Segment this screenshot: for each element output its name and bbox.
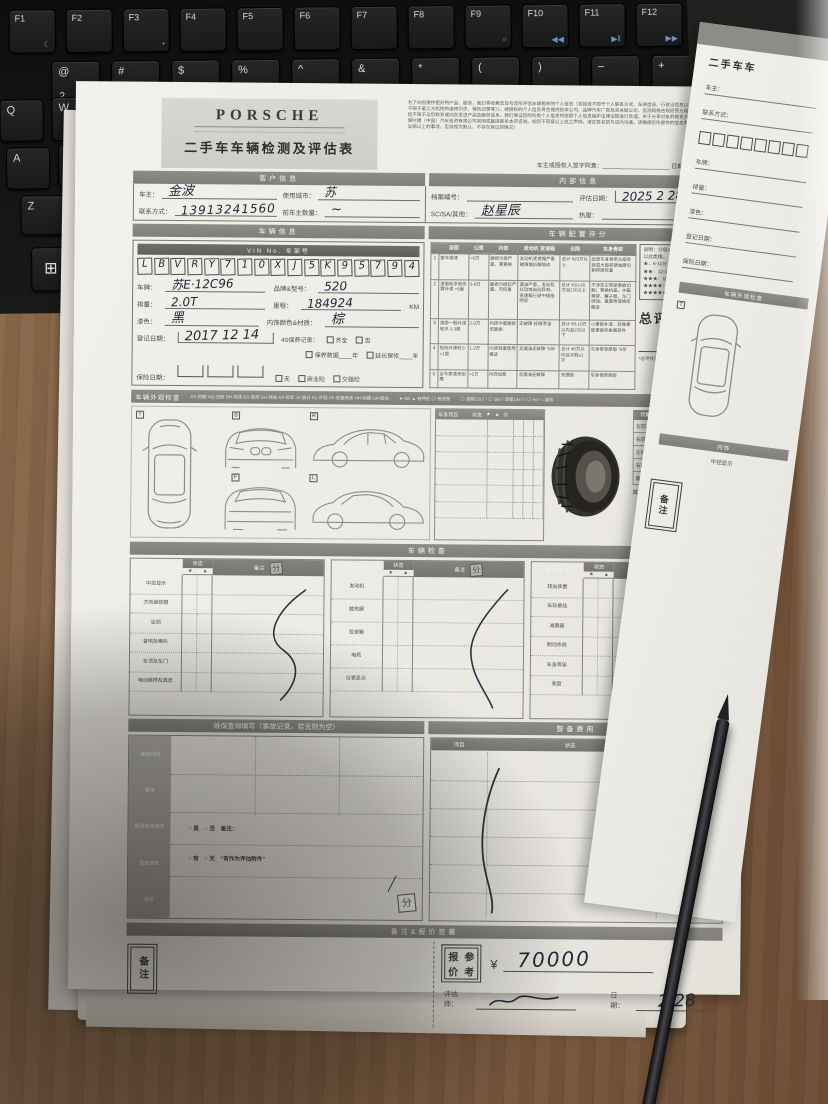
- maintenance-grid: ○ 是 ○ 否 备注： ○ 有 ○ 无 “有作为评估附件” 分: [170, 736, 424, 920]
- key-label: F10: [528, 8, 544, 18]
- key-symbol: @: [58, 66, 69, 78]
- rating-col-frame: 车身骨架: [590, 244, 636, 256]
- sign-label: 车主或授权人签字同意：____________________: [537, 163, 670, 170]
- windows-logo-icon: ⊞: [44, 258, 58, 278]
- vehicle-info-block: VIN No. 车架号 LBVRY710XJ5K95794 车牌： 苏E·12C…: [131, 240, 424, 389]
- score-stamp-box: 分: [397, 893, 417, 913]
- body-items-empty-grid: [435, 419, 544, 519]
- repair-list-options: ○ 有 ○ 无 “有作为评估附件”: [188, 854, 265, 863]
- checkbox-icon: [298, 375, 305, 382]
- key-label: F5: [243, 11, 254, 21]
- car-rear-view-drawing: [217, 479, 303, 534]
- maintenance-row-label: 其他: [128, 896, 170, 903]
- vin-char-handwritten: 5: [304, 259, 320, 276]
- key-symbol: –: [598, 60, 604, 72]
- key-symbol: +: [658, 60, 665, 72]
- key-z: Z: [20, 195, 64, 235]
- scsa-label: SC/SA/其他：: [431, 208, 472, 218]
- side-paint-field: 漆色：: [688, 206, 801, 233]
- keyboard-key: F8: [407, 5, 454, 49]
- car-front-view-drawing: [218, 419, 304, 472]
- currency-symbol: ¥: [490, 957, 497, 972]
- logo-subtext-line: [195, 126, 345, 133]
- trim-value-handwritten: 棕: [330, 308, 344, 327]
- section-bar-maintenance: 维保查询填写（事故记录，若无则为空）: [128, 719, 424, 735]
- key-label: F6: [300, 11, 311, 21]
- rating-row: 4 划伤补漆较少 <1面 1-2万 内饰轻度使用痕迹 无漏油无故障 *5年 总计…: [430, 344, 635, 371]
- keyboard-key: F9 ⌕: [464, 4, 511, 48]
- side-regdate-field: 登记日期：: [685, 231, 798, 258]
- plate-label: 车牌：: [137, 282, 157, 292]
- trim-label: 内饰颜色&材质：: [267, 317, 317, 327]
- maintenance-row-label: 是否保险维修: [128, 823, 170, 830]
- key-media-icon: ▶▶: [665, 34, 677, 43]
- car-view-diagrams: T B R F L: [130, 406, 431, 541]
- maintenance-row-label: 维修时间: [129, 750, 171, 757]
- key-a: A: [6, 147, 50, 189]
- insurance-opt-none: 无: [275, 374, 290, 383]
- vin-char-handwritten: 1: [237, 258, 253, 275]
- paint-value-handwritten: 黑: [170, 307, 184, 326]
- side-insurance-field: 保险日期：: [682, 256, 795, 283]
- key-letter: Q: [6, 105, 15, 117]
- handwritten-check-squiggle: [254, 584, 315, 705]
- service-opt-complete: 齐全: [327, 335, 348, 344]
- rating-col-claims: 出险: [560, 244, 590, 256]
- section-bar-vehicle-info: 车辆信息: [133, 224, 425, 240]
- quote-reference-box: 报参 价考: [444, 947, 478, 979]
- view-label-front: B: [232, 411, 240, 419]
- form-title: 二手车车辆检测及评估表: [161, 137, 377, 158]
- rating-col-paint: 漆面: [439, 243, 469, 255]
- owner-label: 车主：: [139, 189, 159, 199]
- vin-char-handwritten: 9: [337, 259, 353, 276]
- service-opt-no: 否: [356, 336, 371, 345]
- suspension-table-title: 悬挂车身: [532, 562, 584, 578]
- key-symbol: #: [118, 65, 124, 77]
- car-top-view-drawing: [139, 415, 200, 534]
- phone-value-handwritten: 13913241560: [180, 201, 275, 217]
- keyboard-key: F5: [236, 7, 283, 51]
- heat-label: 热度：: [579, 209, 599, 219]
- rating-row: 3 漆面一般补漆较多 2-3面 2-3万 内饰中度磨损无破损 无故障 轻微渗油 …: [430, 319, 635, 346]
- appraiser-signature: [486, 991, 566, 1010]
- key-letter: Z: [27, 200, 34, 212]
- key-label: F4: [186, 12, 197, 22]
- owner-value-handwritten: 金波: [167, 180, 194, 200]
- prev-owners-value-handwritten: ~: [330, 202, 341, 217]
- vin-char-handwritten: 7: [220, 258, 236, 275]
- checkbox-icon: [327, 336, 334, 343]
- vin-char-handwritten: L: [137, 257, 153, 274]
- key-symbol: %: [238, 64, 248, 76]
- registration-date-label: 登记日期：: [137, 333, 170, 343]
- vin-char-handwritten: 4: [404, 260, 420, 277]
- insurance-date-label: 保险日期：: [136, 372, 169, 382]
- key-parts-table-title: 关键部位: [331, 560, 383, 576]
- model-label: 品牌&型号：: [273, 283, 310, 293]
- appraiser-label: 评估师：: [444, 989, 470, 1009]
- car-side-view-left-drawing: [309, 484, 427, 533]
- rating-col-km: 公里: [469, 243, 489, 254]
- refurb-col-item: 项目: [431, 738, 487, 750]
- key-label: F11: [585, 7, 600, 17]
- key-symbol: &: [358, 63, 365, 75]
- plate-value-handwritten: 苏E·12C96: [170, 274, 233, 293]
- rating-table: 漆面 公里 内饰 发动机 变速箱 出险 车身骨架: [429, 242, 636, 390]
- vin-char-handwritten: 9: [387, 260, 403, 277]
- notes-box-label: 备注: [135, 956, 150, 982]
- key-symbol: *: [418, 62, 422, 74]
- vin-char-handwritten: B: [154, 258, 170, 275]
- maintenance-labels: 维修时间费用是否保险维修维修清单其他: [128, 736, 172, 918]
- rating-row: 5 全车原漆无划痕 <1万 内饰如新 无漏油无故障 无理赔 车身骨架原版: [430, 369, 635, 389]
- vin-char-handwritten: 5: [354, 259, 370, 276]
- rating-row: 1 整车做漆 >6万 磨损污损严重，需更换 发动机变速箱严重故障需拆解维修 总计…: [431, 254, 636, 281]
- model-value-handwritten: 520: [324, 279, 347, 294]
- side-view-label: T: [676, 300, 685, 309]
- exterior-legend-paintmeter: ◎ 漆膜13±7 / ◎ 16±7 漆膜14±7 / ◎ 9±7 < 鼓包: [460, 396, 553, 403]
- keyboard-key: F7: [350, 6, 397, 50]
- vin-char-handwritten: 0: [254, 259, 270, 276]
- insurance-repair-options: ○ 是 ○ 否 备注：: [188, 824, 237, 832]
- keyboard-key: F11 ▶‖: [578, 3, 625, 47]
- score-stamp-box: 分: [469, 563, 483, 577]
- vin-char-handwritten: Y: [204, 258, 220, 275]
- view-label-left: L: [309, 474, 317, 482]
- insurance-date-boxes: [177, 364, 267, 383]
- key-label: F1: [15, 13, 26, 23]
- handwritten-check-squiggle: [455, 585, 516, 711]
- key-label: F8: [414, 9, 425, 19]
- keyboard-key: F3 •: [122, 8, 169, 52]
- vin-bar: VIN No. 车架号: [137, 244, 419, 257]
- insurance-opt-commercial: 商业险: [298, 374, 325, 383]
- registration-date-handwritten: 2017 12 14: [184, 327, 259, 344]
- exterior-legend-codes: XS-划痕 NQ-凹陷 DH-掉漆 BX-变形 SH-锈蚀 AX-拆卸 JZ-胶…: [190, 394, 389, 402]
- checkbox-icon: [366, 352, 373, 359]
- key-letter: A: [13, 153, 20, 165]
- maintenance-block: 维修时间费用是否保险维修维修清单其他 ○ 是 ○ 否 备注： ○ 有 ○ 无 “…: [127, 735, 425, 922]
- keyboard-key: F10 ◀◀: [521, 4, 568, 48]
- disclaimer-text: 为了向您提供更好的产品、服务，我们将收集您及与您所评估车辆相关的个人信息（包括但…: [407, 100, 729, 159]
- city-value-handwritten: 苏: [324, 183, 336, 200]
- key-media-icon: ⌕: [502, 34, 507, 44]
- checkbox-icon: [333, 375, 340, 382]
- keyboard-key: F2: [65, 9, 112, 53]
- car-side-view-right-drawing: [310, 422, 428, 471]
- vin-boxes: LBVRY710XJ5K95794: [137, 258, 419, 277]
- tire-photo: [548, 409, 629, 542]
- status-header: 状态: [183, 559, 213, 568]
- key-media-icon: ▶‖: [611, 34, 621, 43]
- handwritten-squiggle: [474, 765, 515, 915]
- key-symbol: ^: [298, 64, 303, 76]
- extended-warranty-opt: 延长保修____年: [366, 351, 418, 360]
- side-displacement-field: 排量：: [692, 181, 805, 208]
- form-header: PORSCHE 二手车车辆检测及评估表 为了向您提供更好的产品、服务，我们将收集…: [133, 98, 730, 173]
- keyboard-key: F4: [179, 7, 226, 51]
- checkbox-icon: [356, 337, 363, 344]
- mileage-label: 里程：: [273, 300, 293, 310]
- rating-row: 2 漆面较多划伤需补漆 >5面 3-6万 磨损污损较严重，可修复 漏油严重，发动…: [430, 279, 635, 320]
- desk-photo: F1 ☾ F2 F3 • F4 F5: [0, 0, 828, 1104]
- client-info-block: 车主：金波 使用城市：苏 联系方式：13913241560 前车主数量：~ 档案…: [133, 184, 729, 226]
- exterior-bar-title: 车辆外观检查: [135, 392, 180, 402]
- file-number-label: 档案编号：: [431, 191, 464, 201]
- paint-label: 漆色：: [137, 316, 157, 326]
- vin-char-handwritten: X: [271, 259, 287, 276]
- keyboard-function-row: F1 ☾ F2 F3 • F4 F5: [9, 2, 709, 55]
- checkbox-icon: [306, 351, 313, 358]
- porsche-logo-panel: PORSCHE 二手车车辆检测及评估表: [161, 98, 378, 170]
- rating-col-engine: 发动机 变速箱: [518, 243, 560, 255]
- key-q: Q: [0, 99, 44, 141]
- key-label: F3: [129, 12, 140, 22]
- exterior-legend-symbols: ★ OK ▲ 有特征 ◎ 有迹象: [399, 396, 451, 402]
- keyboard-key: F6: [293, 6, 340, 50]
- city-label: 使用城市：: [282, 190, 315, 200]
- scsa-value-handwritten: 赵星辰: [480, 199, 519, 219]
- eval-date-label: 评估日期：: [579, 192, 612, 202]
- notes-area: 备注: [126, 939, 435, 1028]
- prev-owners-label: 前车主数量：: [282, 207, 321, 217]
- vin-char-handwritten: R: [187, 258, 203, 275]
- vin-char-handwritten: V: [170, 258, 186, 275]
- mileage-unit: KM: [409, 304, 419, 311]
- side-plate-field: 车牌：: [695, 157, 808, 184]
- maintenance-row-label: 维修清单: [128, 859, 170, 866]
- displacement-label: 排量：: [137, 299, 157, 309]
- key-media-icon: •: [162, 39, 165, 48]
- section-bar-exterior: 车辆外观检查 XS-划痕 NQ-凹陷 DH-掉漆 BX-变形 SH-锈蚀 AX-…: [131, 390, 727, 408]
- checkbox-icon: [275, 375, 282, 382]
- body-col-status: 状态: [472, 411, 482, 418]
- key-symbol: (: [478, 62, 482, 74]
- key-symbol: ): [538, 61, 542, 73]
- key-parts-check-table: 关键部位 状态 备注分 ★▲ 发动机 散热器: [329, 559, 525, 719]
- view-label-right: R: [310, 412, 318, 420]
- key-media-icon: ☾: [44, 40, 51, 49]
- plastic-sleeve-glare: [796, 0, 828, 1000]
- service-data-opt: 保养数据____年: [306, 350, 358, 359]
- keyboard-key: F1 ☾: [9, 9, 56, 53]
- pen-mark: [384, 874, 400, 894]
- interior-check-table: 内饰 状态 备注分 ★▲ 中控显示 方向盘按键: [128, 558, 324, 718]
- key-label: F12: [642, 7, 658, 17]
- note-header: 备注: [254, 564, 264, 571]
- key-label: F9: [471, 9, 482, 19]
- body-items-table: 车身项目 状态 ★ ▲ ◎: [434, 408, 545, 541]
- quote-date-label: 日期：: [610, 991, 629, 1011]
- body-col-item: 车身项目: [438, 411, 458, 418]
- section-bar-notes-quote: 备注&报价签署: [127, 923, 723, 941]
- key-media-icon: ◀◀: [551, 35, 563, 44]
- insurance-opt-compulsory: 交强险: [333, 374, 360, 383]
- score-stamp-box: 分: [269, 561, 283, 575]
- rating-col-interior: 内饰: [489, 243, 519, 255]
- key-symbol: $: [178, 65, 184, 77]
- vin-char-handwritten: K: [321, 259, 337, 276]
- vin-char-handwritten: J: [287, 259, 303, 276]
- notes-box: 备注: [130, 947, 154, 991]
- phone-label: 联系方式：: [139, 206, 172, 216]
- key-label: F7: [357, 10, 368, 20]
- key-label: F2: [72, 13, 83, 23]
- side-notes-box: 备注: [648, 482, 680, 529]
- side-car-top-view: [678, 303, 749, 429]
- interior-table-title: 内饰: [131, 559, 183, 575]
- vin-char-handwritten: 7: [371, 260, 387, 277]
- maintenance-row-label: 费用: [129, 787, 171, 794]
- brand-logo: PORSCHE: [162, 107, 378, 126]
- quote-amount-handwritten: 70000: [517, 946, 591, 972]
- service-record-label: 4S保养记录：: [281, 335, 318, 344]
- eval-date-value-handwritten: 2025 2 28: [621, 188, 682, 204]
- mileage-value-handwritten: 184924: [306, 296, 352, 311]
- keyboard-key: F12 ▶▶: [635, 3, 682, 47]
